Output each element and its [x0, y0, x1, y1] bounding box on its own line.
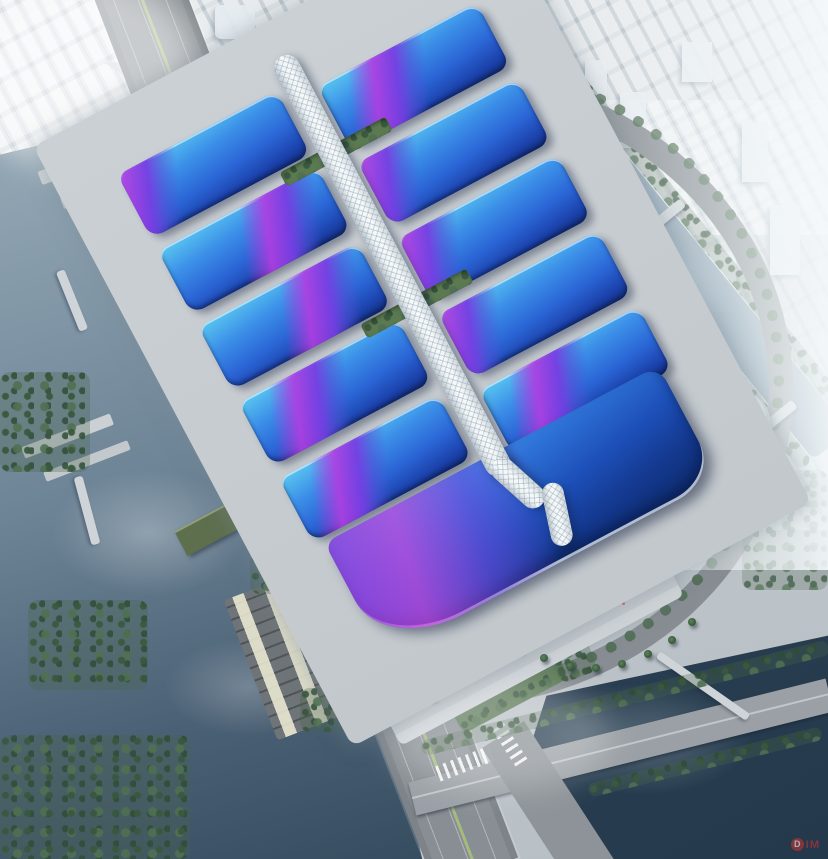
- palm-tree: [644, 650, 652, 658]
- palm-tree: [540, 654, 548, 662]
- palm-tree: [618, 660, 626, 668]
- palm-tree: [592, 664, 600, 672]
- riverside-trees: [0, 372, 90, 472]
- aerial-rendering-scene: D IM: [0, 0, 828, 859]
- watermark-text: IM: [806, 839, 820, 851]
- palm-tree: [566, 662, 574, 670]
- palm-tree: [688, 618, 696, 626]
- palm-tree: [668, 636, 676, 644]
- watermark-d-icon: D: [791, 838, 804, 851]
- watermark-logo: D IM: [791, 838, 820, 851]
- riverside-trees: [28, 600, 148, 690]
- riverside-trees: [0, 735, 190, 859]
